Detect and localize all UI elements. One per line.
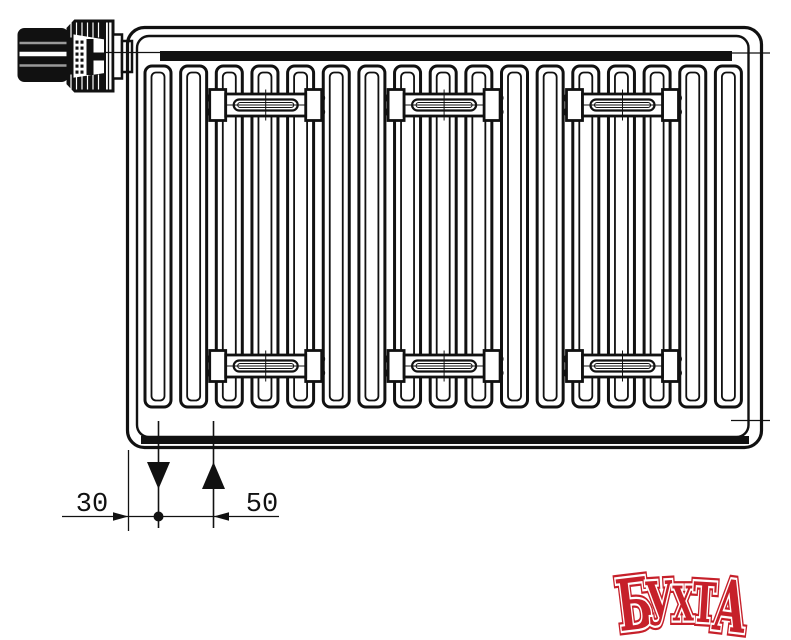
fin-inner-line [258,73,271,401]
drawing-canvas: 30 50 БУХТАБУХТА [0,0,791,640]
scale-mark [81,41,84,44]
valve-indicator-stem [94,53,106,61]
dimension-label-wall-offset: 30 [76,490,108,520]
logo-letter: У [643,567,676,640]
radiator-technical-drawing: 30 50 БУХТАБУХТА [0,0,791,640]
scale-mark [76,71,79,74]
thermostatic-valve-head [18,21,133,91]
radiator-bottom-rail [141,436,749,444]
scale-mark [76,41,79,44]
bracket-end-plate [663,351,679,382]
scale-mark [76,59,79,62]
fin-inner-line [722,73,735,401]
bracket-end-plate [210,351,226,382]
fin-inner-line [508,73,521,401]
scale-mark [81,59,84,62]
bracket-end-plate [306,90,322,121]
logo-bukhta: БУХТАБУХТА [612,561,752,640]
scale-mark [81,71,84,74]
fin-inner-line [152,73,165,401]
radiator-panel [104,28,770,448]
bracket-end-plate [388,90,404,121]
fin-inner-line [187,73,200,401]
bracket-end-plate [388,351,404,382]
scale-mark [76,47,79,50]
bracket-end-plate [567,351,583,382]
dimension-arrow-left [214,512,230,520]
valve-tailpiece [113,35,122,79]
bracket-end-plate [210,90,226,121]
bracket-end-plate [484,351,500,382]
flow-arrow-up [202,462,225,489]
dimension-arrow-right [113,512,129,520]
bracket-end-plate [663,90,679,121]
flow-arrow-down [147,462,170,489]
radiator-top-rail [160,51,732,61]
valve-indicator-bar [87,39,94,75]
bracket-end-plate [567,90,583,121]
scale-mark [81,47,84,50]
fin-inner-line [365,73,378,401]
dimension-label-pipe-spacing: 50 [246,490,278,520]
bracket-end-plate [484,90,500,121]
fin-inner-line [544,73,557,401]
dimension-dot [154,512,164,522]
bracket-end-plate [306,351,322,382]
scale-mark [76,65,79,68]
fin-inner-line [686,73,699,401]
fin-inner-line [437,73,450,401]
scale-mark [81,65,84,68]
fin-inner-line [330,73,343,401]
scale-mark [81,53,84,56]
valve-skirt-edge [68,34,74,79]
scale-mark [76,53,79,56]
fin-inner-line [615,73,628,401]
